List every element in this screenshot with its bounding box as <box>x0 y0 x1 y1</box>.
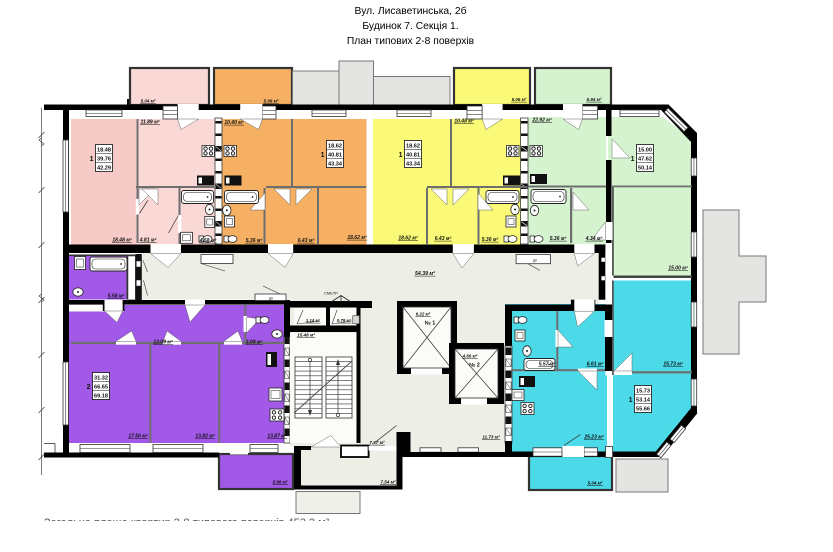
svg-text:43.34: 43.34 <box>328 162 343 168</box>
svg-text:11.73 м²: 11.73 м² <box>482 435 500 440</box>
svg-text:1: 1 <box>631 156 635 163</box>
svg-text:6.22 м²: 6.22 м² <box>416 312 431 317</box>
svg-text:5.06 м²: 5.06 м² <box>264 99 279 104</box>
svg-text:ДК: ДК <box>533 259 537 263</box>
svg-text:18.62: 18.62 <box>328 144 342 150</box>
svg-text:50.14: 50.14 <box>638 166 653 172</box>
svg-text:42.29: 42.29 <box>97 166 111 172</box>
svg-text:55.66: 55.66 <box>636 407 650 413</box>
svg-text:1: 1 <box>629 397 633 404</box>
svg-text:5.04 м²: 5.04 м² <box>141 99 156 104</box>
svg-text:40.81: 40.81 <box>328 153 342 159</box>
svg-text:1: 1 <box>321 152 325 159</box>
svg-text:ДК: ДК <box>269 296 273 300</box>
svg-text:40.81: 40.81 <box>406 153 420 159</box>
svg-text:№ 1: № 1 <box>425 321 436 327</box>
svg-text:СМЕТР: СМЕТР <box>324 291 338 296</box>
svg-text:1: 1 <box>399 152 403 159</box>
svg-text:15.00: 15.00 <box>638 148 652 154</box>
svg-text:№ 2: № 2 <box>469 363 480 369</box>
svg-text:1: 1 <box>90 156 94 163</box>
svg-text:18.48: 18.48 <box>97 148 111 154</box>
svg-text:7.87 м²: 7.87 м² <box>369 440 385 445</box>
svg-text:47.62: 47.62 <box>638 157 652 163</box>
svg-text:39.76: 39.76 <box>97 157 111 163</box>
svg-text:5.96 м²: 5.96 м² <box>273 480 288 485</box>
svg-text:4.66 м²: 4.66 м² <box>462 354 478 359</box>
svg-text:18.62: 18.62 <box>406 144 420 150</box>
svg-text:53.14: 53.14 <box>636 398 651 404</box>
svg-text:66.65: 66.65 <box>94 385 108 391</box>
svg-text:43.34: 43.34 <box>406 162 421 168</box>
svg-text:5.94 м²: 5.94 м² <box>587 97 602 102</box>
svg-text:15.48 м²: 15.48 м² <box>297 333 315 338</box>
svg-text:69.18: 69.18 <box>94 394 108 400</box>
svg-text:2: 2 <box>87 384 91 391</box>
svg-text:15.73: 15.73 <box>636 389 650 395</box>
svg-text:5.06 м²: 5.06 м² <box>512 97 527 102</box>
svg-text:7.54 м²: 7.54 м² <box>380 480 396 485</box>
svg-text:5.04 м²: 5.04 м² <box>588 481 603 486</box>
svg-text:31.32: 31.32 <box>94 376 108 382</box>
